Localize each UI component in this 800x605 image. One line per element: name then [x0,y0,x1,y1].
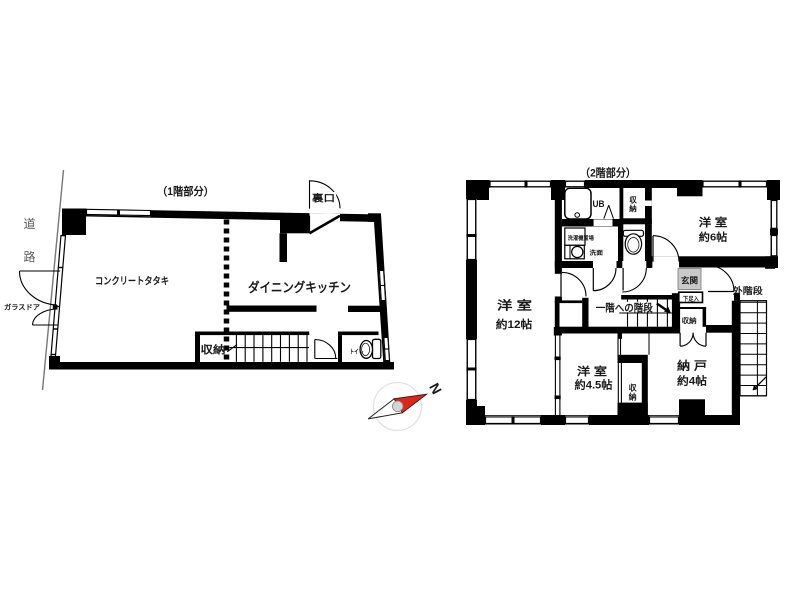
svg-text:外階段: 外階段 [732,285,764,296]
svg-text:UB: UB [593,199,605,209]
svg-text:収納: 収納 [201,343,226,356]
svg-text:洋 室: 洋 室 [577,364,607,378]
svg-text:下足入: 下足入 [683,295,699,303]
svg-text:コンクリートタタキ: コンクリートタタキ [95,276,169,288]
svg-text:洗面: 洗面 [590,249,604,257]
svg-text:約4帖: 約4帖 [677,374,707,388]
svg-text:路: 路 [24,249,36,264]
svg-text:収: 収 [629,383,638,393]
svg-text:（1階部分）: （1階部分） [157,184,214,198]
svg-text:洋 室: 洋 室 [699,215,728,229]
svg-text:一階への階段: 一階への階段 [596,301,653,314]
svg-text:納 戸: 納 戸 [677,359,707,373]
svg-text:道: 道 [24,217,36,231]
svg-text:トイレ: トイレ [350,348,364,356]
svg-text:玄関: 玄関 [681,276,698,286]
svg-text:約4.5帖: 約4.5帖 [575,378,613,392]
svg-text:納: 納 [629,203,637,213]
svg-text:収納: 収納 [682,316,697,325]
svg-text:洗濯機置場: 洗濯機置場 [568,234,594,242]
svg-text:約12帖: 約12帖 [496,317,533,331]
svg-text:（2階部分）: （2階部分） [580,166,636,180]
svg-text:納: 納 [629,392,637,402]
svg-text:ガラスドア: ガラスドア [4,303,40,312]
svg-text:収: 収 [629,195,637,205]
svg-text:ダイニングキッチン: ダイニングキッチン [248,280,351,295]
svg-text:約6帖: 約6帖 [699,231,728,244]
svg-text:裏口: 裏口 [311,193,335,205]
svg-text:洋 室: 洋 室 [497,298,532,313]
